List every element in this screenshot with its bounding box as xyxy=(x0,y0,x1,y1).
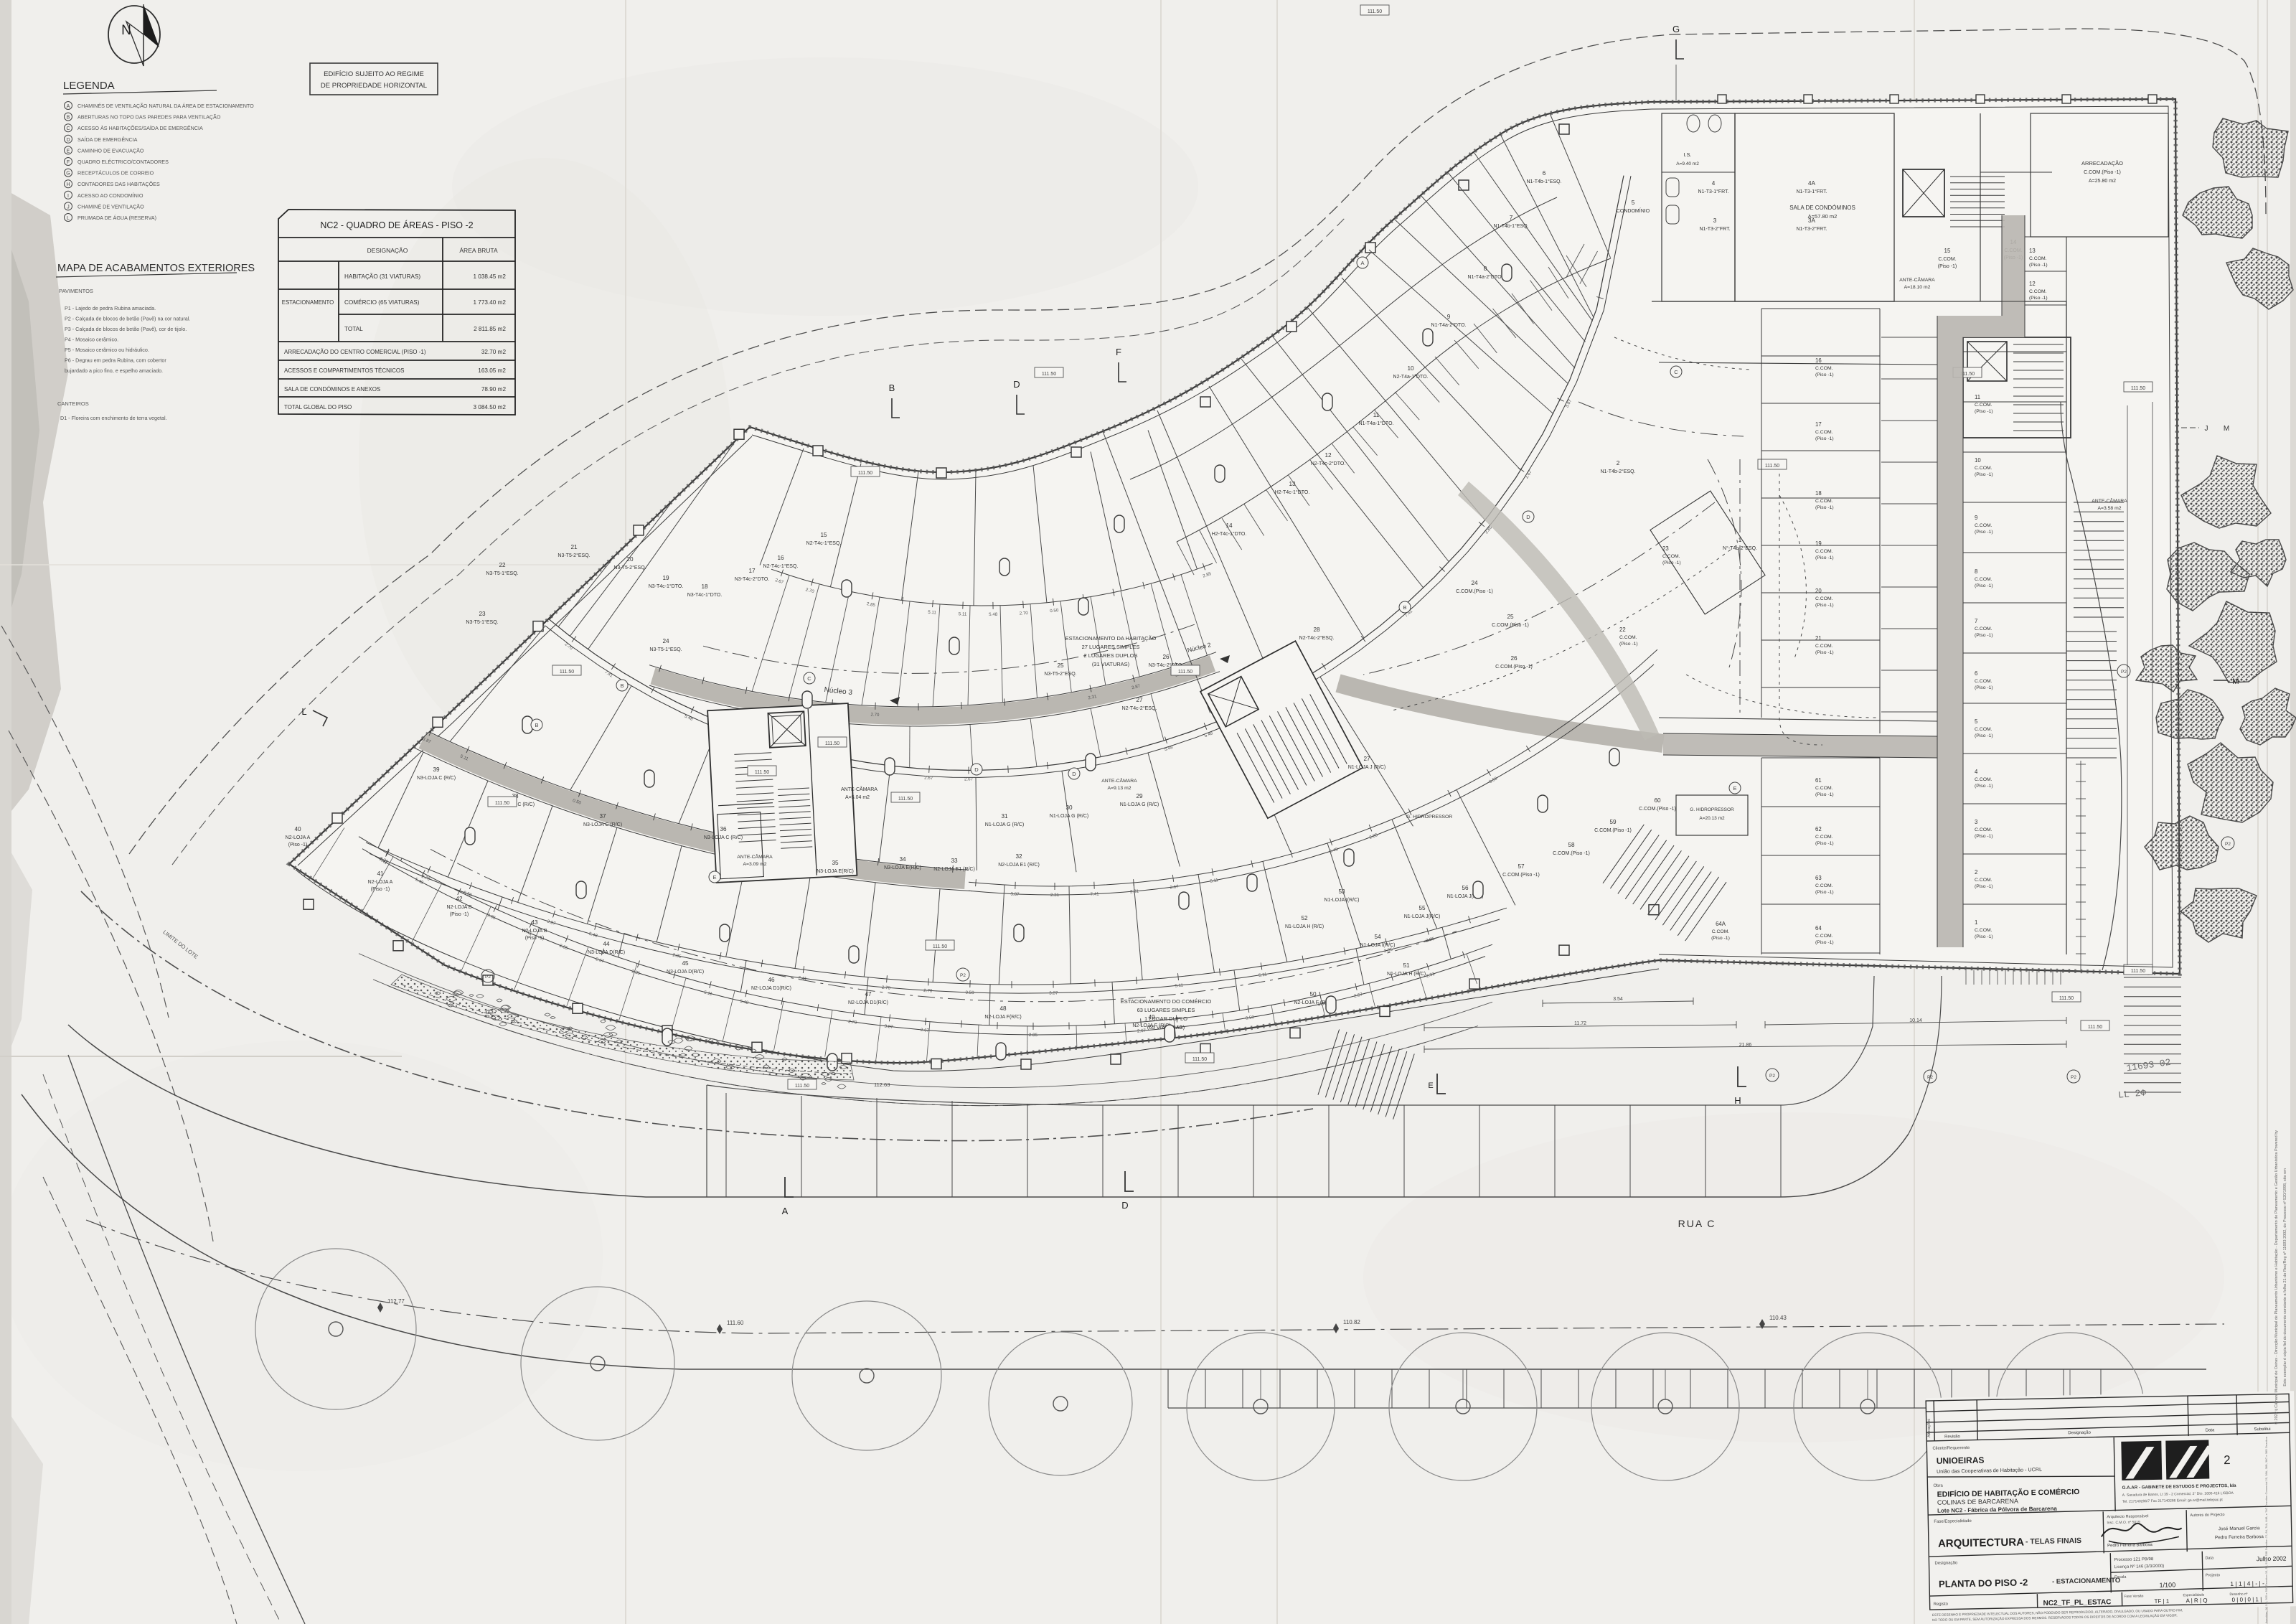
svg-text:10.14: 10.14 xyxy=(1909,1018,1922,1023)
svg-text:110.43: 110.43 xyxy=(1769,1315,1787,1321)
svg-text:25: 25 xyxy=(1507,614,1514,620)
svg-text:TOTAL: TOTAL xyxy=(344,326,363,332)
svg-text:N3-LOJA D(R/C): N3-LOJA D(R/C) xyxy=(667,970,704,975)
svg-text:N3-T5-2°ESQ.: N3-T5-2°ESQ. xyxy=(613,565,646,571)
svg-text:C.COM.: C.COM. xyxy=(1815,430,1833,435)
svg-text:C.COM.(Piso -1): C.COM.(Piso -1) xyxy=(1502,873,1540,878)
svg-text:N3-T5-2°ESQ.: N3-T5-2°ESQ. xyxy=(1044,671,1076,677)
svg-text:56: 56 xyxy=(1462,885,1469,891)
svg-text:2.31: 2.31 xyxy=(1050,893,1060,898)
svg-text:C.COM.: C.COM. xyxy=(1975,777,1992,782)
svg-text:N2-T4a-1°DTO.: N2-T4a-1°DTO. xyxy=(1393,374,1429,380)
svg-text:ACESSO AO CONDOMÍNIO: ACESSO AO CONDOMÍNIO xyxy=(77,192,143,199)
svg-text:(Piso -1): (Piso -1) xyxy=(1975,834,1993,839)
svg-text:111.50: 111.50 xyxy=(1765,464,1779,469)
svg-text:2.70: 2.70 xyxy=(870,712,880,718)
svg-text:5.48: 5.48 xyxy=(989,612,998,617)
svg-text:A=3.58 m2: A=3.58 m2 xyxy=(2097,506,2121,511)
svg-text:ARQUITECTURA: ARQUITECTURA xyxy=(1938,1536,2024,1549)
svg-text:SALA DE CONDÓMINOS E ANEXOS: SALA DE CONDÓMINOS E ANEXOS xyxy=(284,386,380,393)
svg-text:40: 40 xyxy=(294,826,301,832)
svg-text:A=9.13 m2: A=9.13 m2 xyxy=(1107,786,1131,791)
svg-text:B: B xyxy=(620,682,624,689)
svg-text:N2-LOJA B: N2-LOJA B xyxy=(446,905,471,910)
svg-text:(Piso -1): (Piso -1) xyxy=(1711,936,1730,941)
svg-text:CONDOMÍNIO: CONDOMÍNIO xyxy=(1617,207,1650,214)
svg-text:C.COM.: C.COM. xyxy=(1975,878,1992,883)
svg-text:111.50: 111.50 xyxy=(1042,372,1056,377)
svg-text:52: 52 xyxy=(1301,915,1308,921)
svg-text:P4 - Mosaico cerâmico.: P4 - Mosaico cerâmico. xyxy=(65,337,118,343)
svg-text:(Piso -1): (Piso -1) xyxy=(2029,296,2048,301)
svg-text:C.COM.: C.COM. xyxy=(1975,577,1992,582)
svg-text:H2-T4c-1°DTO.: H2-T4c-1°DTO. xyxy=(1212,531,1247,537)
svg-text:3.87: 3.87 xyxy=(1049,990,1058,995)
svg-text:C.COM.: C.COM. xyxy=(1815,366,1833,371)
svg-text:PRUMADA DE ÁGUA (RESERVA): PRUMADA DE ÁGUA (RESERVA) xyxy=(77,215,156,221)
svg-text:RECEPTÁCULOS DE CORREIO: RECEPTÁCULOS DE CORREIO xyxy=(77,170,154,177)
svg-text:50: 50 xyxy=(1309,991,1317,998)
svg-text:N1-LOJA J (R/C): N1-LOJA J (R/C) xyxy=(1348,765,1386,770)
svg-text:N1-T3-2°FRT.: N1-T3-2°FRT. xyxy=(1796,226,1827,232)
svg-text:C.COM.: C.COM. xyxy=(1815,934,1833,939)
svg-text:C.COM.: C.COM. xyxy=(1815,644,1833,649)
svg-text:NC2_TF_PL_ESTAC: NC2_TF_PL_ESTAC xyxy=(2043,1598,2112,1607)
svg-text:DESIGNAÇÃO: DESIGNAÇÃO xyxy=(367,247,408,254)
svg-text:C.COM.: C.COM. xyxy=(1815,499,1833,504)
svg-text:M: M xyxy=(2232,677,2239,686)
svg-text:31: 31 xyxy=(1001,813,1008,820)
svg-text:N2-LOJA E1 (R/C): N2-LOJA E1 (R/C) xyxy=(998,863,1040,868)
svg-text:2: 2 xyxy=(1617,460,1620,466)
svg-text:42: 42 xyxy=(456,896,463,902)
svg-text:27: 27 xyxy=(1363,756,1370,762)
svg-text:13: 13 xyxy=(2029,248,2036,254)
svg-text:C.COM.(Piso -1): C.COM.(Piso -1) xyxy=(1492,623,1529,628)
svg-text:G: G xyxy=(66,172,70,177)
svg-text:C.COM.: C.COM. xyxy=(1815,786,1833,791)
svg-text:N3-LOJA E(R/C): N3-LOJA E(R/C) xyxy=(884,865,921,870)
svg-text:Registo: Registo xyxy=(1934,1602,1949,1607)
svg-text:C.COM.: C.COM. xyxy=(1975,466,1992,471)
svg-text:(Piso -1): (Piso -1) xyxy=(1938,264,1957,269)
svg-text:B: B xyxy=(535,722,538,728)
svg-text:I: I xyxy=(67,194,69,199)
svg-text:(Piso -1): (Piso -1) xyxy=(450,912,469,917)
svg-text:P2: P2 xyxy=(960,973,966,978)
svg-text:QUADRO ELÉCTRICO/CONTADORES: QUADRO ELÉCTRICO/CONTADORES xyxy=(77,159,169,165)
svg-text:(31 VIATURAS): (31 VIATURAS) xyxy=(1092,661,1130,667)
svg-text:24: 24 xyxy=(1471,580,1478,586)
svg-text:Este exemplar é cópia fiel do: Este exemplar é cópia fiel do documento … xyxy=(2282,1168,2287,1386)
svg-text:32: 32 xyxy=(1015,853,1022,860)
svg-text:61: 61 xyxy=(1815,777,1822,784)
svg-text:N1-T3-2°FRT.: N1-T3-2°FRT. xyxy=(1699,226,1730,232)
svg-text:- TELAS FINAIS: - TELAS FINAIS xyxy=(2026,1536,2081,1546)
svg-text:28: 28 xyxy=(1313,626,1320,633)
svg-text:16: 16 xyxy=(777,555,784,561)
svg-text:48: 48 xyxy=(999,1005,1007,1012)
svg-text:8: 8 xyxy=(1484,266,1487,272)
svg-text:45: 45 xyxy=(682,960,689,967)
svg-text:1 773.40 m2: 1 773.40 m2 xyxy=(473,299,506,306)
svg-text:N3-T5-1°ESQ.: N3-T5-1°ESQ. xyxy=(486,571,518,576)
svg-text:7: 7 xyxy=(1975,618,1977,624)
svg-text:MAPA DE ACABAMENTOS EXTERIORES: MAPA DE ACABAMENTOS EXTERIORES xyxy=(57,263,255,274)
svg-text:3: 3 xyxy=(1975,819,1977,825)
svg-text:B: B xyxy=(67,116,70,121)
svg-text:N2-T4c-1°ESQ.: N2-T4c-1°ESQ. xyxy=(763,563,799,569)
svg-text:Insc. C.M.O. nº 5019: Insc. C.M.O. nº 5019 xyxy=(2107,1520,2140,1525)
svg-text:27 LUGARES SIMPLES: 27 LUGARES SIMPLES xyxy=(1082,644,1140,650)
svg-text:Fase Versão: Fase Versão xyxy=(2124,1594,2143,1599)
svg-text:(Piso -1): (Piso -1) xyxy=(1815,650,1834,655)
svg-text:(Piso -1): (Piso -1) xyxy=(1815,372,1834,377)
svg-text:E: E xyxy=(1428,1081,1433,1090)
svg-text:58: 58 xyxy=(1568,842,1575,848)
svg-text:44: 44 xyxy=(603,941,610,947)
svg-text:A: A xyxy=(1360,260,1364,266)
svg-text:NC2 - QUADRO DE ÁREAS - PISO -: NC2 - QUADRO DE ÁREAS - PISO -2 xyxy=(320,220,473,230)
svg-text:29: 29 xyxy=(1136,793,1143,799)
svg-text:N1-LOJA I(R/C): N1-LOJA I(R/C) xyxy=(1324,898,1359,903)
svg-text:(Piso -1): (Piso -1) xyxy=(1815,792,1834,797)
svg-text:4: 4 xyxy=(1975,769,1978,775)
svg-text:(Piso -1): (Piso -1) xyxy=(1815,841,1834,846)
svg-text:15: 15 xyxy=(820,532,827,538)
svg-text:N1-T4b-1°ESQ.: N1-T4b-1°ESQ. xyxy=(1493,223,1528,229)
svg-text:C.COM.: C.COM. xyxy=(1815,835,1833,840)
svg-text:B: B xyxy=(1403,604,1406,611)
svg-text:6: 6 xyxy=(1975,670,1977,677)
svg-text:1 | 1 | 4 | - | -: 1 | 1 | 4 | - | - xyxy=(2230,1580,2264,1587)
svg-text:PAVIMENTOS: PAVIMENTOS xyxy=(59,288,93,294)
svg-text:UNIOEIRAS: UNIOEIRAS xyxy=(1937,1455,1985,1466)
svg-text:26: 26 xyxy=(1510,655,1518,662)
svg-text:SAÍDA DE EMERGÊNCIA: SAÍDA DE EMERGÊNCIA xyxy=(77,136,138,143)
svg-text:F: F xyxy=(67,160,70,165)
svg-text:C.COM.: C.COM. xyxy=(1662,554,1680,559)
svg-text:3.54: 3.54 xyxy=(1613,997,1623,1002)
svg-text:G. HIDROPRESSOR: G. HIDROPRESSOR xyxy=(1690,807,1734,812)
svg-text:E: E xyxy=(712,874,716,881)
svg-text:43: 43 xyxy=(531,919,538,926)
svg-text:(Piso -1): (Piso -1) xyxy=(1975,633,1993,638)
svg-text:ACESSO ÀS HABITAÇÕES/SAÍDA DE: ACESSO ÀS HABITAÇÕES/SAÍDA DE EMERGÊNCIA xyxy=(77,125,203,131)
svg-text:41: 41 xyxy=(377,870,384,877)
svg-text:C.COM.: C.COM. xyxy=(2029,289,2047,294)
svg-text:N1-T4a-1°DTO.: N1-T4a-1°DTO. xyxy=(1359,421,1394,426)
svg-text:ANTE-CÂMARA: ANTE-CÂMARA xyxy=(1101,777,1137,784)
svg-text:F: F xyxy=(1116,347,1121,357)
svg-text:C.COM.(Piso -1): C.COM.(Piso -1) xyxy=(1553,851,1590,856)
svg-text:5.11: 5.11 xyxy=(928,610,937,616)
svg-text:ANTE-CÂMARA: ANTE-CÂMARA xyxy=(1899,276,1935,283)
svg-text:55: 55 xyxy=(1418,905,1426,911)
svg-text:3.87: 3.87 xyxy=(1010,892,1020,898)
svg-text:H: H xyxy=(66,182,70,187)
svg-text:CAMINHO DE EVACUAÇÃO: CAMINHO DE EVACUAÇÃO xyxy=(77,147,144,154)
svg-text:N3-LOJA C (R/C): N3-LOJA C (R/C) xyxy=(704,835,743,840)
svg-text:37: 37 xyxy=(599,813,606,820)
svg-text:14: 14 xyxy=(1225,522,1233,529)
svg-text:4A: 4A xyxy=(1808,180,1816,187)
svg-text:Julho 2002: Julho 2002 xyxy=(2257,1554,2287,1562)
svg-text:163.05 m2: 163.05 m2 xyxy=(478,367,506,374)
svg-text:D: D xyxy=(1526,514,1530,520)
svg-text:C.COM.(Piso -1): C.COM.(Piso -1) xyxy=(1594,828,1632,833)
svg-text:C.COM.: C.COM. xyxy=(1712,929,1730,934)
svg-text:11: 11 xyxy=(1975,394,1980,400)
svg-text:ABERTURAS NO TOPO DAS PAREDES: ABERTURAS NO TOPO DAS PAREDES PARA VENTI… xyxy=(77,114,221,121)
svg-text:64A: 64A xyxy=(1716,921,1726,927)
svg-text:111.60: 111.60 xyxy=(727,1320,744,1326)
svg-text:HABITAÇÃO (31 VIATURAS): HABITAÇÃO (31 VIATURAS) xyxy=(344,273,420,280)
svg-text:PLANTA DO PISO -2: PLANTA DO PISO -2 xyxy=(1939,1577,2028,1589)
svg-text:P2: P2 xyxy=(485,975,491,980)
svg-text:13: 13 xyxy=(1289,481,1296,487)
svg-text:6: 6 xyxy=(1543,170,1546,177)
svg-text:P2: P2 xyxy=(1769,1074,1775,1079)
svg-text:20: 20 xyxy=(1815,588,1822,594)
svg-text:47: 47 xyxy=(865,991,872,998)
svg-text:Pedro Ferreira Barbosa: Pedro Ferreira Barbosa xyxy=(2107,1543,2152,1548)
svg-text:DE PROPRIEDADE HORIZONTAL: DE PROPRIEDADE HORIZONTAL xyxy=(321,82,427,90)
svg-text:C: C xyxy=(66,126,70,131)
svg-text:60: 60 xyxy=(1654,797,1661,804)
svg-text:10: 10 xyxy=(1407,365,1414,372)
svg-text:(Piso -1): (Piso -1) xyxy=(1975,685,1993,690)
svg-text:N3-T4c-1°DTO.: N3-T4c-1°DTO. xyxy=(687,592,723,598)
svg-text:1 038.45 m2: 1 038.45 m2 xyxy=(473,273,506,280)
svg-text:C.COM.: C.COM. xyxy=(1975,626,1992,632)
svg-text:5.11: 5.11 xyxy=(1175,982,1184,988)
svg-text:C.COM.: C.COM. xyxy=(1815,596,1833,601)
svg-text:63 LUGARES SIMPLES: 63 LUGARES SIMPLES xyxy=(1137,1007,1195,1013)
svg-text:A=20.13 m2: A=20.13 m2 xyxy=(1699,816,1725,821)
svg-text:112.63: 112.63 xyxy=(874,1081,890,1088)
svg-text:N3-LOJA C (R/C): N3-LOJA C (R/C) xyxy=(417,776,456,781)
svg-text:57: 57 xyxy=(1518,863,1525,870)
svg-text:ACESSOS E COMPARTIMENTOS TÉCNI: ACESSOS E COMPARTIMENTOS TÉCNICOS xyxy=(284,367,404,374)
svg-text:7: 7 xyxy=(1510,215,1513,221)
svg-text:(Piso -1): (Piso -1) xyxy=(1815,555,1834,560)
svg-text:N3-T5-1°ESQ.: N3-T5-1°ESQ. xyxy=(466,619,498,625)
svg-text:0.50: 0.50 xyxy=(965,990,974,995)
svg-text:18: 18 xyxy=(701,583,708,590)
svg-text:N2-LOJA A: N2-LOJA A xyxy=(286,835,311,840)
svg-text:11: 11 xyxy=(1373,412,1380,418)
svg-text:1: 1 xyxy=(1975,919,1977,926)
svg-text:24: 24 xyxy=(662,638,669,644)
svg-text:P5 - Mosaico cerâmico ou hidrá: P5 - Mosaico cerâmico ou hidráulico. xyxy=(65,347,149,353)
svg-text:27: 27 xyxy=(1136,697,1143,703)
svg-text:José Manuel Garcia: José Manuel Garcia xyxy=(2219,1526,2260,1531)
svg-text:111.50: 111.50 xyxy=(755,770,769,775)
svg-text:A=25.80 m2: A=25.80 m2 xyxy=(2089,179,2116,184)
svg-text:C.COM.: C.COM. xyxy=(2029,256,2047,261)
svg-text:111.50: 111.50 xyxy=(795,1084,809,1089)
svg-text:RUA C: RUA C xyxy=(1678,1218,1716,1229)
svg-text:12: 12 xyxy=(1325,452,1332,459)
svg-text:C.COM.: C.COM. xyxy=(1815,883,1833,888)
svg-text:2.70: 2.70 xyxy=(882,985,891,991)
svg-text:N1-LOJA G (R/C): N1-LOJA G (R/C) xyxy=(1120,802,1159,807)
svg-text:Escala: Escala xyxy=(2114,1575,2127,1580)
svg-text:4: 4 xyxy=(1712,180,1716,187)
svg-text:78.90 m2: 78.90 m2 xyxy=(481,386,507,393)
svg-text:D: D xyxy=(66,138,70,143)
svg-text:(Piso -1): (Piso -1) xyxy=(2029,263,2048,268)
svg-text:LEGENDA: LEGENDA xyxy=(63,80,115,92)
svg-text:N1-T4a-2°DTO.: N1-T4a-2°DTO. xyxy=(1431,322,1467,328)
svg-text:C.COM.: C.COM. xyxy=(1975,727,1992,732)
svg-text:111.50: 111.50 xyxy=(1178,670,1192,675)
svg-text:Rua das Avenidas, 90 3-A, 505: Rua das Avenidas, 90 3-A, 505 e 50C Dezo… xyxy=(2264,1437,2268,1624)
svg-text:36: 36 xyxy=(720,826,727,832)
svg-text:E: E xyxy=(1733,785,1736,792)
svg-text:N3-LOJA D(R/C): N3-LOJA D(R/C) xyxy=(588,950,625,955)
svg-text:A | R | Q: A | R | Q xyxy=(2186,1597,2207,1605)
svg-text:A: A xyxy=(782,1206,789,1216)
svg-text:(Piso -1): (Piso -1) xyxy=(1815,603,1834,608)
svg-text:(Piso -1): (Piso -1) xyxy=(1815,940,1834,945)
svg-text:Revisão: Revisão xyxy=(1944,1435,1960,1439)
svg-text:(Piso -1): (Piso -1) xyxy=(288,842,307,848)
svg-text:C.COM.(Piso -1): C.COM.(Piso -1) xyxy=(1495,665,1533,670)
svg-text:(Piso -1): (Piso -1) xyxy=(371,887,390,892)
svg-text:111.50: 111.50 xyxy=(2059,996,2074,1001)
svg-text:ESTACIONAMENTO DO COMÉRCIO: ESTACIONAMENTO DO COMÉRCIO xyxy=(1121,998,1212,1005)
svg-text:2.67: 2.67 xyxy=(1137,1028,1147,1034)
svg-text:I.S.: I.S. xyxy=(1683,151,1691,158)
svg-text:C: C xyxy=(1674,369,1678,375)
svg-text:P1 - Lajedo de pedra Rubina am: P1 - Lajedo de pedra Rubina amaciada. xyxy=(65,305,156,311)
svg-text:N1-T4a-2°DTO.: N1-T4a-2°DTO. xyxy=(1468,274,1503,280)
svg-text:CANTEIROS: CANTEIROS xyxy=(57,400,89,407)
svg-text:TOTAL GLOBAL DO PISO: TOTAL GLOBAL DO PISO xyxy=(284,404,352,410)
svg-text:J: J xyxy=(67,205,70,210)
svg-text:C.COM.: C.COM. xyxy=(1975,523,1992,528)
svg-text:bujardado a pico fino, e espel: bujardado a pico fino, e espelho amaciad… xyxy=(65,367,163,374)
svg-text:H: H xyxy=(1734,1095,1741,1106)
svg-text:N1-LOJA H (R/C): N1-LOJA H (R/C) xyxy=(1285,924,1324,929)
svg-text:C.COM.(Piso -1): C.COM.(Piso -1) xyxy=(1456,589,1493,594)
svg-text:15: 15 xyxy=(1944,248,1951,254)
svg-text:111.50: 111.50 xyxy=(2131,386,2145,391)
svg-text:5: 5 xyxy=(1632,200,1635,206)
svg-text:51: 51 xyxy=(1403,962,1410,969)
svg-text:16: 16 xyxy=(1815,357,1822,364)
svg-text:- ESTACIONAMENTO: - ESTACIONAMENTO xyxy=(2052,1577,2120,1586)
svg-text:2.70: 2.70 xyxy=(1020,611,1029,616)
svg-text:D: D xyxy=(1121,1200,1128,1211)
svg-text:N1-T4b-1°ESQ.: N1-T4b-1°ESQ. xyxy=(1526,179,1561,184)
svg-text:CHAMINÉS DE VENTILAÇÃO NATURAL: CHAMINÉS DE VENTILAÇÃO NATURAL DA ÁREA D… xyxy=(77,103,254,109)
svg-text:2.67: 2.67 xyxy=(924,775,933,781)
svg-text:(Piso -1): (Piso -1) xyxy=(1975,784,1993,789)
svg-text:(Piso -1): (Piso -1) xyxy=(1975,472,1993,477)
svg-text:(Piso -1): (Piso -1) xyxy=(1815,890,1834,895)
svg-text:ARRECADAÇÃO DO CENTRO COMERCIA: ARRECADAÇÃO DO CENTRO COMERCIAL (PISO -1… xyxy=(284,349,426,355)
svg-text:TF | 1: TF | 1 xyxy=(2154,1598,2169,1605)
svg-text:C.COM.: C.COM. xyxy=(1975,679,1992,684)
svg-text:(Piso -1): (Piso -1) xyxy=(1975,409,1993,414)
svg-text:3: 3 xyxy=(1713,217,1717,224)
svg-text:59: 59 xyxy=(1609,819,1617,825)
svg-text:A=57.80 m2: A=57.80 m2 xyxy=(1808,213,1838,220)
svg-text:21: 21 xyxy=(1815,635,1822,642)
svg-text:D1 - Floreira com enchimento d: D1 - Floreira com enchimento de terra ve… xyxy=(60,415,167,421)
svg-text:P2: P2 xyxy=(1927,1075,1933,1080)
svg-text:C: C xyxy=(807,675,811,682)
svg-text:32.70 m2: 32.70 m2 xyxy=(481,349,507,355)
svg-text:17: 17 xyxy=(748,568,756,574)
svg-text:2.70: 2.70 xyxy=(923,988,933,994)
svg-text:17: 17 xyxy=(1815,421,1822,428)
svg-text:3.87: 3.87 xyxy=(884,1024,893,1030)
svg-text:B: B xyxy=(889,382,895,393)
svg-text:33: 33 xyxy=(951,858,958,864)
svg-text:COMÉRCIO (65 VIATURAS): COMÉRCIO (65 VIATURAS) xyxy=(344,299,420,306)
svg-text:63: 63 xyxy=(1815,875,1822,881)
svg-text:2 LUGARES DUPLOS: 2 LUGARES DUPLOS xyxy=(1083,652,1137,659)
svg-text:ÁREA BRUTA: ÁREA BRUTA xyxy=(459,247,498,254)
svg-text:2: 2 xyxy=(1975,869,1977,876)
svg-text:112.77: 112.77 xyxy=(387,1298,405,1305)
svg-text:N1-T4b-2°ESQ.: N1-T4b-2°ESQ. xyxy=(1600,469,1635,474)
svg-text:2 811.85 m2: 2 811.85 m2 xyxy=(474,326,506,332)
svg-text:Alterações: Alterações xyxy=(1927,1419,1932,1437)
svg-text:P3 - Calçada de blocos de betã: P3 - Calçada de blocos de betão (Pavê), … xyxy=(65,326,187,332)
svg-text:M: M xyxy=(2224,425,2229,433)
svg-text:(Piso -1): (Piso -1) xyxy=(525,936,544,941)
svg-text:3 084.50 m2: 3 084.50 m2 xyxy=(473,404,506,410)
svg-text:C.COM.: C.COM. xyxy=(1815,549,1833,554)
svg-text:A: A xyxy=(67,104,70,109)
svg-text:111.50: 111.50 xyxy=(825,741,839,746)
svg-text:N2-LOJA E1 (R/C): N2-LOJA E1 (R/C) xyxy=(933,867,975,872)
svg-text:Data: Data xyxy=(2206,1428,2215,1432)
svg-text:(Piso -1): (Piso -1) xyxy=(1975,733,1993,738)
svg-text:P6 - Degrau em pedra Rubina, c: P6 - Degrau em pedra Rubina, com coberto… xyxy=(65,357,166,364)
svg-text:EDIFÍCIO SUJEITO AO REGIME: EDIFÍCIO SUJEITO AO REGIME xyxy=(324,70,424,78)
svg-text:P2: P2 xyxy=(2121,670,2127,675)
svg-text:21: 21 xyxy=(570,544,578,550)
svg-text:34: 34 xyxy=(899,856,906,863)
svg-text:C.COM.: C.COM. xyxy=(1975,827,1992,832)
svg-text:2: 2 xyxy=(2224,1453,2231,1467)
svg-text:© 2022 ij Câmara Municip: © 2022 ij Câmara Municipal de Oeiras - D… xyxy=(2274,1130,2279,1424)
svg-text:53: 53 xyxy=(1338,888,1345,895)
svg-text:(Piso -1): (Piso -1) xyxy=(1815,505,1834,510)
svg-text:Autores do Projecto: Autores do Projecto xyxy=(2190,1513,2224,1518)
svg-text:111.50: 111.50 xyxy=(2088,1025,2102,1030)
svg-text:N2-LOJA A: N2-LOJA A xyxy=(368,880,393,885)
svg-text:5: 5 xyxy=(1975,718,1978,725)
svg-text:30: 30 xyxy=(1065,804,1073,811)
svg-text:7.41: 7.41 xyxy=(1090,891,1099,897)
svg-text:SALA DE CONDÓMINOS: SALA DE CONDÓMINOS xyxy=(1789,205,1855,211)
svg-text:A=3.09 m2: A=3.09 m2 xyxy=(743,862,766,867)
svg-text:111.50: 111.50 xyxy=(2131,969,2145,974)
svg-text:111.50: 111.50 xyxy=(1368,9,1382,14)
svg-text:D: D xyxy=(1013,379,1020,390)
svg-text:N1-LOJA H (R/C): N1-LOJA H (R/C) xyxy=(1387,972,1426,977)
svg-text:D: D xyxy=(974,766,979,773)
svg-text:(Piso -1): (Piso -1) xyxy=(1975,884,1993,889)
svg-text:C.COM.: C.COM. xyxy=(1975,928,1992,933)
